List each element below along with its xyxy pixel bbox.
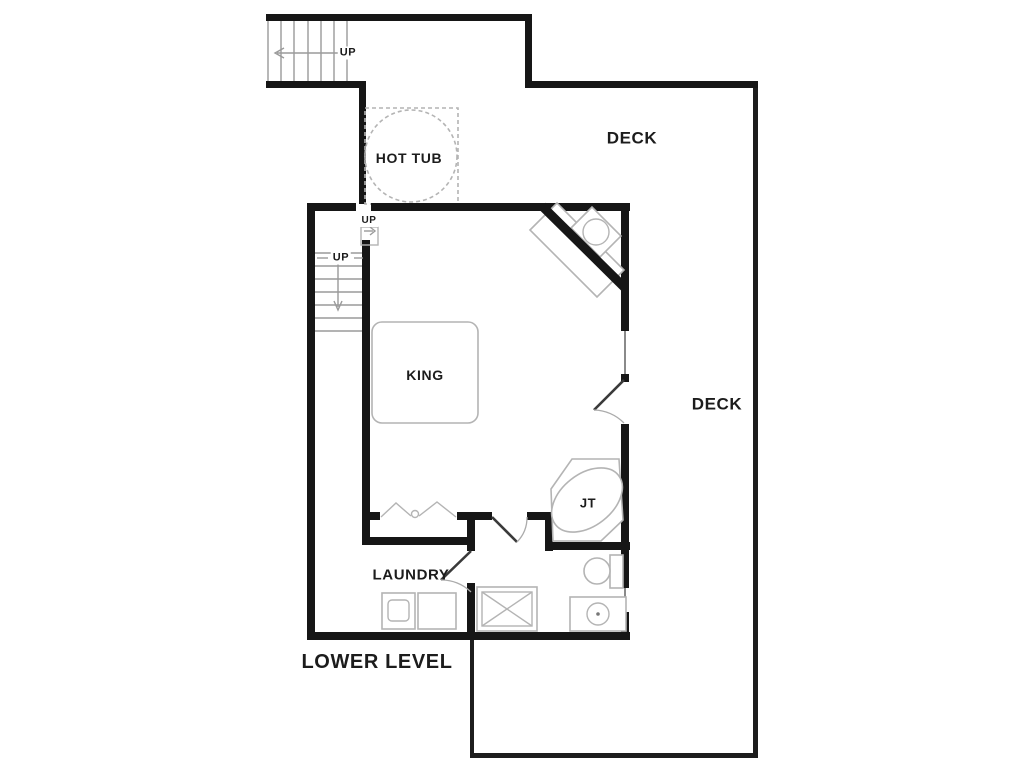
up-label-interior-stairs: UP	[331, 252, 351, 265]
deck-label-upper: DECK	[607, 130, 658, 147]
deck-label-right: DECK	[692, 396, 743, 413]
lower-level-caption: LOWER LEVEL	[301, 652, 452, 672]
up-label-stair-landing: UP	[359, 215, 378, 227]
interior-staircase	[315, 227, 378, 542]
floor-plan: UP DECK HOT TUB UP UP KING DECK JT LAUND…	[0, 0, 1024, 768]
jetted-tub-label: JT	[580, 497, 596, 510]
laundry-label: LAUNDRY	[373, 568, 450, 583]
deck-boundary	[470, 81, 758, 758]
bifold-closet-doors	[381, 502, 456, 518]
building-outline	[266, 14, 758, 204]
bathroom-door	[492, 517, 527, 542]
floor-plan-drawing	[0, 0, 1024, 768]
shower	[477, 587, 537, 631]
hot-tub-label: HOT TUB	[374, 150, 444, 166]
deck-door	[594, 380, 624, 423]
dryer	[418, 593, 456, 629]
king-bed-label: KING	[406, 368, 443, 382]
up-label-exterior-stairs: UP	[338, 47, 358, 60]
vanity-sink	[570, 597, 626, 631]
landing-arrow	[364, 227, 375, 235]
washer	[382, 593, 415, 629]
corner-fireplace	[530, 203, 625, 297]
toilet	[584, 555, 623, 588]
